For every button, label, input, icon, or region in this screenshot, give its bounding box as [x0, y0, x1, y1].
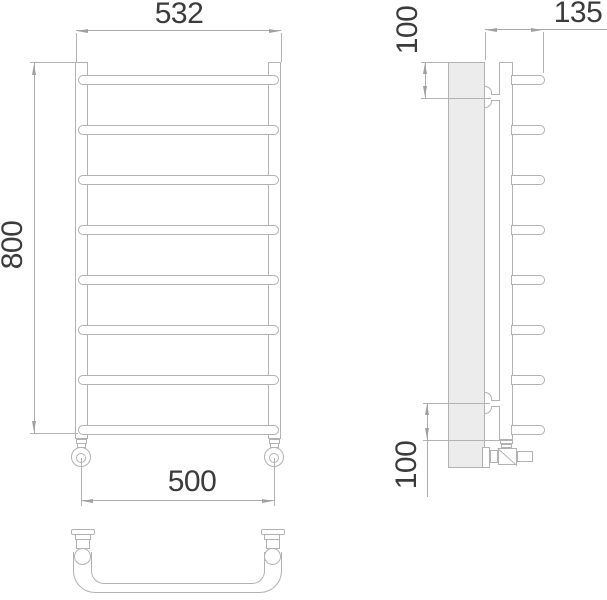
side-rung-1 — [511, 75, 545, 85]
dim-135-line — [485, 29, 607, 30]
towel-bar-8 — [78, 425, 279, 435]
wall-section — [448, 62, 485, 468]
dim-100t-ext-bottom — [421, 98, 491, 99]
dim-800-ext-top — [30, 62, 86, 63]
side-rung-2 — [511, 125, 545, 135]
valve-nut — [490, 450, 498, 463]
dim-800-arrow-bottom — [32, 421, 36, 432]
side-rung-7 — [511, 375, 545, 385]
dim-135-ext-right — [543, 32, 544, 73]
dim-532-line — [76, 30, 281, 31]
side-rung-3 — [511, 175, 545, 185]
side-rung-6 — [511, 325, 545, 335]
technical-drawing: 532 800 500 135 100 100 — [0, 0, 607, 600]
dim-500-arrow-left — [82, 499, 93, 503]
dim-800-ext-bottom — [30, 433, 78, 434]
upper-bracket-stem — [491, 94, 500, 101]
dim-100b-line — [427, 403, 428, 497]
dim-800-line — [34, 63, 35, 433]
valve-outlet-pipe — [517, 451, 533, 462]
towel-bar-4 — [78, 225, 279, 235]
dim-100b-arrow-top — [425, 404, 429, 415]
dim-500-ext-right — [274, 458, 275, 506]
dim-500-label: 500 — [152, 468, 232, 496]
towel-bar-7 — [78, 375, 279, 385]
lower-bracket-stem — [491, 400, 500, 407]
dim-500-arrow-right — [262, 499, 273, 503]
dim-800-label: 800 — [0, 205, 27, 285]
left-corner-ball — [74, 548, 91, 565]
side-rung-5 — [511, 275, 545, 285]
dim-800-arrow-top — [32, 64, 36, 75]
u-tube-inner — [91, 552, 265, 584]
dim-100b-label: 100 — [393, 425, 421, 505]
dim-100b-arrow-bottom — [425, 428, 429, 439]
towel-bar-3 — [78, 175, 279, 185]
dim-532-label: 532 — [139, 0, 219, 28]
right-corner-ball — [264, 548, 281, 565]
side-rung-4 — [511, 225, 545, 235]
towel-bar-6 — [78, 325, 279, 335]
dim-100b-ext-top — [423, 403, 490, 404]
dim-135-ext-left — [485, 32, 486, 60]
dim-135-arrow-left — [486, 28, 497, 32]
dim-100t-arrow-top — [423, 63, 427, 74]
dim-532-ext-right — [281, 33, 282, 62]
dim-100b-ext-bottom — [423, 440, 500, 441]
dim-100t-arrow-bottom — [423, 86, 427, 97]
towel-bar-1 — [78, 75, 279, 85]
dim-500-line — [81, 500, 274, 501]
dim-532-arrow-left — [77, 29, 88, 33]
dim-135-arrow-right — [531, 28, 542, 32]
towel-bar-5 — [78, 275, 279, 285]
towel-bar-2 — [78, 125, 279, 135]
dim-100t-label: 100 — [394, 0, 422, 70]
valve-wall-flange — [482, 447, 490, 468]
dim-532-ext-left — [76, 33, 77, 62]
dim-135-label: 135 — [538, 0, 607, 27]
side-rung-8 — [511, 425, 545, 435]
dim-532-arrow-right — [269, 29, 280, 33]
